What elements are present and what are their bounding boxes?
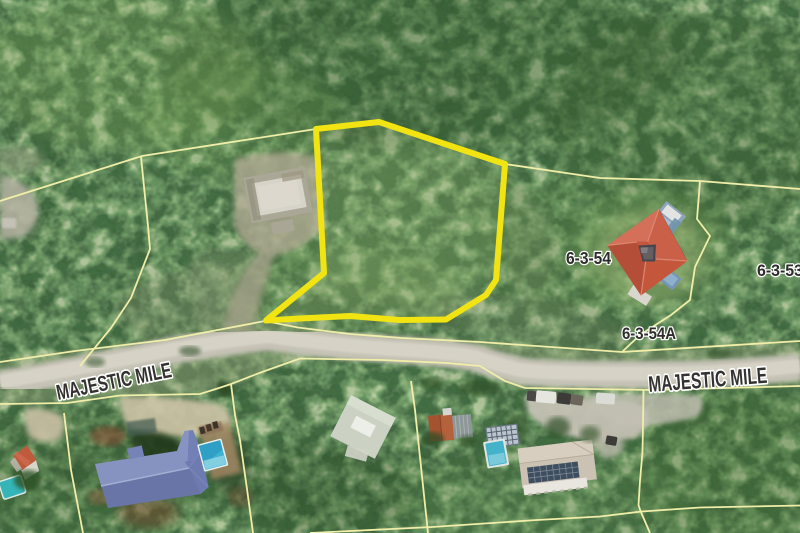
svg-text:6-3-53: 6-3-53: [757, 262, 800, 280]
svg-text:6-3-54A: 6-3-54A: [622, 325, 676, 343]
svg-text:6-3-54: 6-3-54: [566, 248, 611, 268]
